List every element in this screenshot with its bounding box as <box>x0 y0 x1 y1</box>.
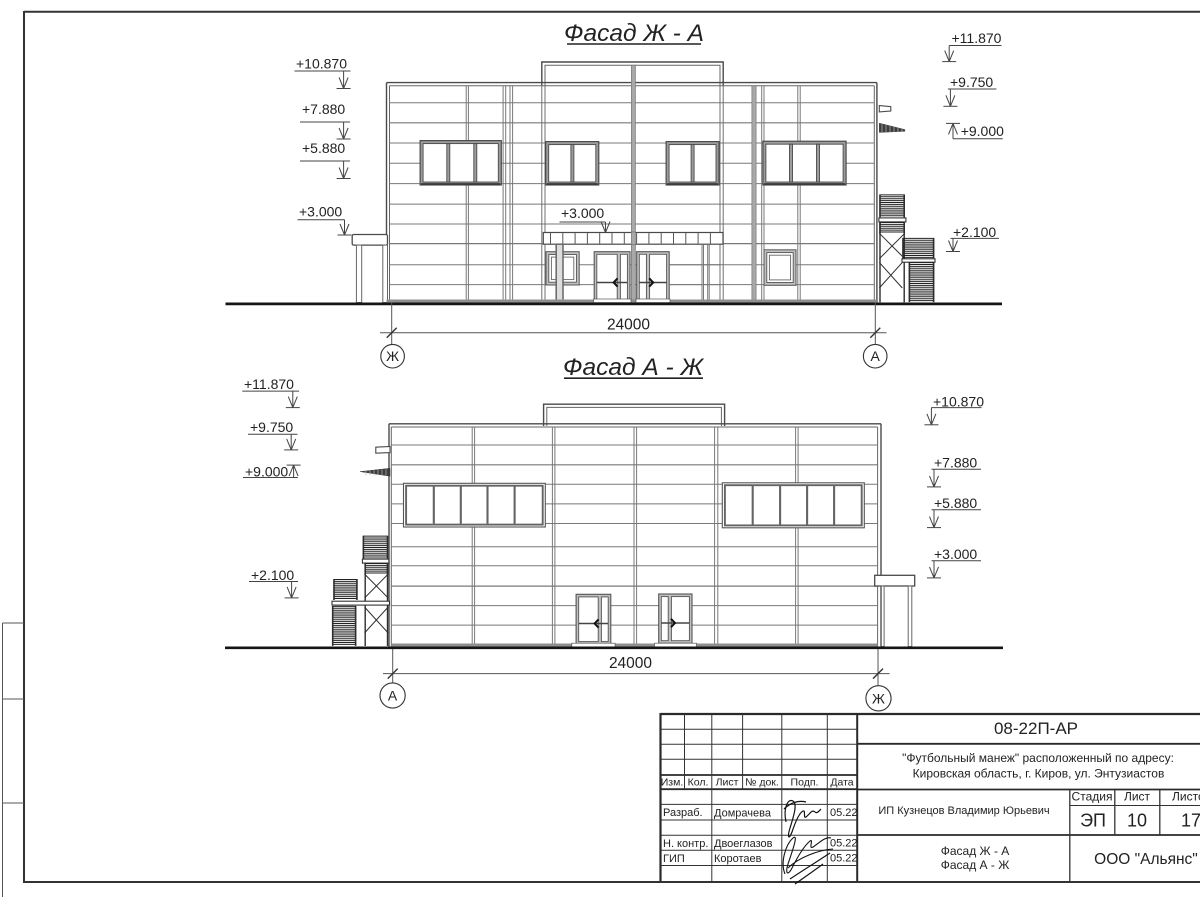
svg-text:24000: 24000 <box>609 655 652 672</box>
svg-text:Домрачева: Домрачева <box>714 808 772 820</box>
svg-text:Изм.: Изм. <box>661 777 684 789</box>
svg-text:Фасад А - Ж: Фасад А - Ж <box>941 858 1010 872</box>
svg-text:ЭП: ЭП <box>1080 811 1106 831</box>
svg-text:+7.880: +7.880 <box>934 455 977 471</box>
svg-text:А: А <box>388 688 398 704</box>
svg-text:+5.880: +5.880 <box>302 140 345 156</box>
svg-text:№ док.: № док. <box>745 777 779 789</box>
svg-text:Фасад Ж - А: Фасад Ж - А <box>941 844 1010 858</box>
svg-text:Стадия: Стадия <box>1072 790 1113 804</box>
svg-text:+5.880: +5.880 <box>934 495 977 511</box>
svg-text:+10.870: +10.870 <box>933 393 984 409</box>
svg-text:+7.880: +7.880 <box>302 101 345 117</box>
svg-text:Ж: Ж <box>386 348 399 364</box>
svg-text:05.22: 05.22 <box>830 853 858 865</box>
svg-text:+11.870: +11.870 <box>244 376 294 392</box>
svg-text:ИП Кузнецов Владимир Юрьевич: ИП Кузнецов Владимир Юрьевич <box>878 805 1049 817</box>
svg-text:+9.750: +9.750 <box>950 74 993 90</box>
svg-text:Подп.: Подп. <box>791 777 819 789</box>
svg-text:Коротаев: Коротаев <box>714 853 762 865</box>
svg-text:+2.100: +2.100 <box>251 567 294 583</box>
svg-text:Н. контр.: Н. контр. <box>663 838 708 850</box>
svg-text:"Футбольный манеж" расположенн: "Футбольный манеж" расположенный по адре… <box>902 751 1174 765</box>
svg-text:Листов: Листов <box>1172 790 1200 804</box>
svg-text:+2.100: +2.100 <box>953 224 996 240</box>
svg-text:Фасад А - Ж: Фасад А - Ж <box>563 354 704 381</box>
svg-text:Двоеглазов: Двоеглазов <box>714 838 773 850</box>
svg-text:Разраб.: Разраб. <box>663 807 703 819</box>
svg-text:08-22П-АР: 08-22П-АР <box>994 719 1078 738</box>
svg-text:+3.000: +3.000 <box>934 546 977 562</box>
svg-text:24000: 24000 <box>607 317 650 334</box>
svg-text:Фасад Ж - А: Фасад Ж - А <box>564 20 704 47</box>
svg-text:+3.000: +3.000 <box>561 205 604 221</box>
svg-text:Кировская область, г. Киров, у: Кировская область, г. Киров, ул. Энтузиа… <box>913 767 1165 781</box>
svg-text:17: 17 <box>1181 811 1200 831</box>
svg-text:Ж: Ж <box>872 691 885 707</box>
svg-text:Дата: Дата <box>830 777 853 789</box>
svg-text:05.22: 05.22 <box>830 838 858 850</box>
svg-text:ГИП: ГИП <box>663 853 685 865</box>
svg-text:+9.000: +9.000 <box>961 123 1004 139</box>
svg-text:05.22: 05.22 <box>830 807 858 819</box>
svg-text:Лист: Лист <box>716 777 739 789</box>
svg-text:А: А <box>871 348 881 364</box>
svg-text:10: 10 <box>1127 811 1147 831</box>
svg-text:+11.870: +11.870 <box>952 30 1002 46</box>
svg-text:+9.750: +9.750 <box>250 419 293 435</box>
svg-text:Кол.: Кол. <box>688 777 709 789</box>
svg-text:+10.870: +10.870 <box>296 56 347 72</box>
svg-text:+3.000: +3.000 <box>299 204 342 220</box>
svg-text:Лист: Лист <box>1124 790 1151 804</box>
svg-text:ООО "Альянс": ООО "Альянс" <box>1094 851 1198 868</box>
